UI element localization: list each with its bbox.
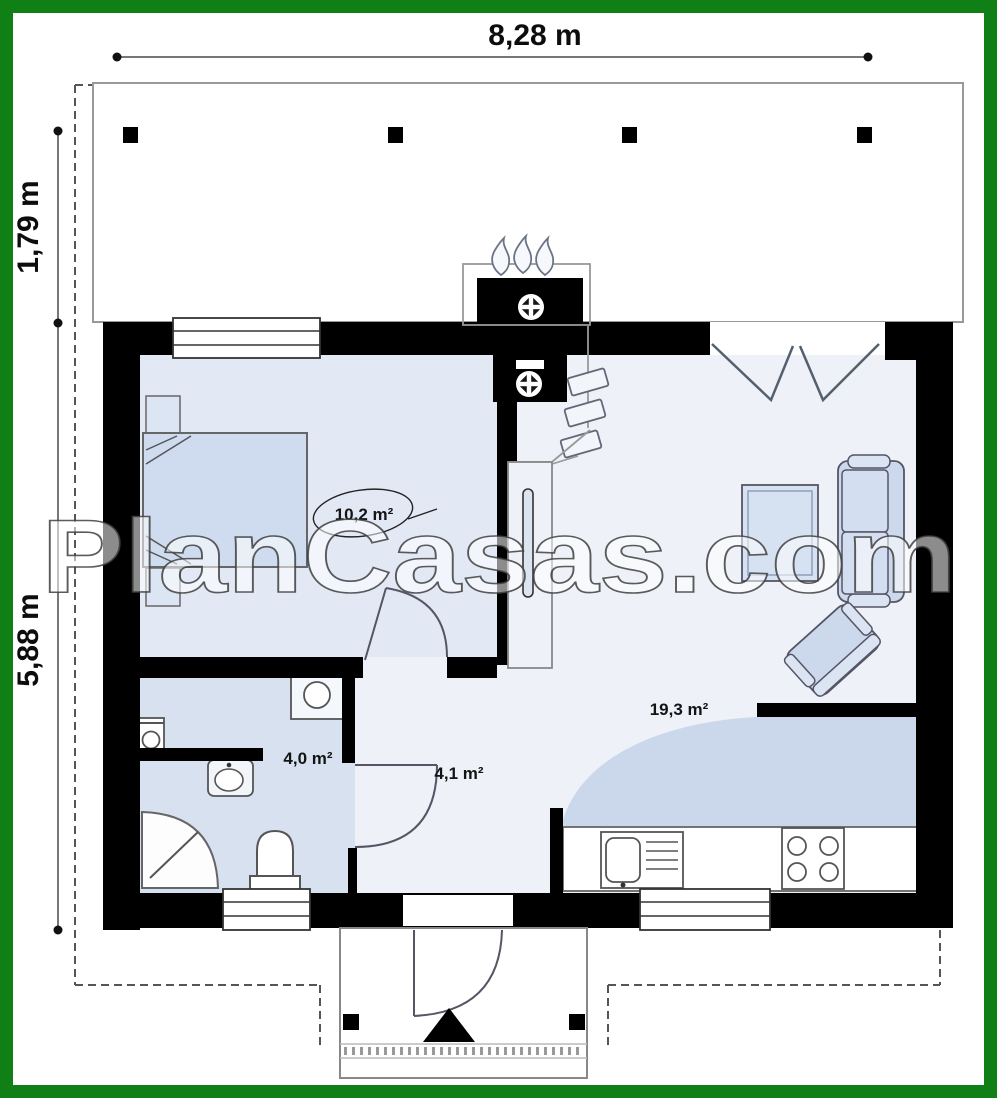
- post-icon: [622, 127, 637, 143]
- washbasin-bowl: [215, 769, 243, 791]
- post-icon: [857, 127, 872, 143]
- dimension-dot: [54, 926, 63, 935]
- wall-right: [916, 322, 953, 928]
- hall-area-label: 4,1 m²: [434, 764, 483, 783]
- floor-plan-page: 8,28 m 1,79 m 5,88 m: [0, 0, 997, 1098]
- flue-vent-icon: [516, 371, 542, 397]
- wall-bedroom-bottom: [103, 657, 363, 678]
- toilet-bowl: [257, 831, 293, 879]
- water-heater-dial: [143, 732, 160, 749]
- wall-left: [103, 322, 140, 930]
- wall-top-living: [585, 322, 710, 355]
- wall-bedroom-door-jamb: [447, 657, 497, 678]
- flue-slot: [516, 360, 544, 369]
- porch-post-icon: [343, 1014, 359, 1030]
- kitchen-sink-basin: [606, 838, 640, 882]
- floor-plan-drawing: 8,28 m 1,79 m 5,88 m: [0, 0, 997, 1098]
- wall-bathroom-right-lower: [348, 848, 357, 893]
- french-door-opening: [710, 322, 885, 355]
- flue-vent-icon: [518, 294, 544, 320]
- kitchen-counter: [563, 827, 917, 891]
- dimension-dot: [54, 127, 63, 136]
- dimension-top-label: 8,28 m: [488, 19, 581, 52]
- kitchen-window: [640, 889, 770, 930]
- porch-post-icon: [569, 1014, 585, 1030]
- bathroom-area-label: 4,0 m²: [283, 749, 332, 768]
- watermark-text: PlanCasas.com: [42, 499, 957, 615]
- post-icon: [388, 127, 403, 143]
- nightstand: [146, 396, 180, 434]
- dimension-dot: [113, 53, 122, 62]
- vent-grille-icon: [560, 368, 608, 458]
- wall-hall-kitchen-stub: [550, 808, 563, 893]
- washing-machine-drum: [304, 682, 330, 708]
- washbasin-tap: [227, 763, 232, 768]
- dimension-dot: [54, 319, 63, 328]
- wall-kitchen-stub: [757, 703, 917, 717]
- fireplace-flames-icon: [492, 236, 553, 275]
- dimension-porch-label: 1,79 m: [12, 180, 45, 273]
- dimension-house-label: 5,88 m: [12, 593, 45, 686]
- entrance-opening: [403, 895, 513, 926]
- wall-bathroom-right-upper: [342, 658, 355, 763]
- living-area-label: 19,3 m²: [650, 700, 709, 719]
- wall-bathroom-partition: [140, 748, 263, 761]
- kitchen-sink-tap: [621, 883, 626, 888]
- sofa-armrest: [848, 455, 890, 468]
- bathroom-window: [223, 889, 310, 930]
- dimension-dot: [864, 53, 873, 62]
- bedroom-window: [173, 318, 320, 358]
- post-icon: [123, 127, 138, 143]
